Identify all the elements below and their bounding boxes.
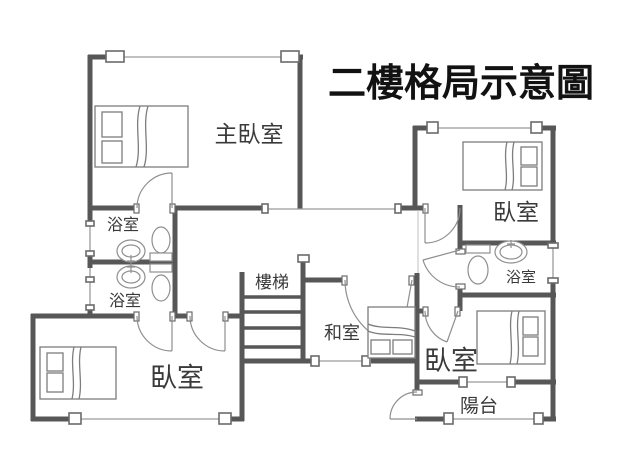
window-marker (459, 377, 467, 387)
door-swing-bedroom-bottom-left (190, 316, 225, 351)
door-swing-bedroom-top-right (425, 208, 460, 243)
window-marker (86, 251, 94, 256)
window-marker (444, 413, 453, 424)
window-marker (548, 278, 558, 283)
bed-icon-bottom-left (40, 347, 116, 399)
bed-icon-top-right (463, 142, 542, 190)
sink-icon-right-bathroom (495, 240, 527, 263)
window-marker (395, 204, 401, 213)
toilet-icon-lower-bathroom (150, 264, 172, 301)
room-label-bedroom-bottom-right: 臥室 (424, 346, 478, 377)
window-marker (262, 204, 268, 213)
room-label-right-bathroom: 浴室 (506, 268, 536, 286)
window-marker (427, 122, 438, 133)
room-label-balcony: 陽台 (460, 395, 498, 417)
window-marker (106, 51, 124, 62)
floorplan-svg: 二樓格局示意圖 主臥室 浴室 浴室 樓梯 和室 臥室 浴室 臥室 臥室 陽台 (0, 0, 640, 461)
room-label-upper-bathroom: 浴室 (107, 215, 139, 234)
toilet-icon-upper-bathroom (150, 227, 172, 261)
door-swing-bedroom-bottom-right (425, 311, 458, 342)
window-marker (86, 221, 94, 226)
window-marker (86, 277, 94, 282)
toilet-icon-right-bathroom (466, 245, 490, 284)
floorplan-page: 二樓格局示意圖 主臥室 浴室 浴室 樓梯 和室 臥室 浴室 臥室 臥室 陽台 (0, 0, 640, 461)
wall-end-cap (298, 255, 309, 262)
window-marker (86, 305, 94, 310)
window-marker (219, 413, 231, 424)
bed-icon-tatami-room (368, 307, 415, 358)
room-label-stairs: 樓梯 (255, 273, 289, 293)
room-label-bedroom-top-right: 臥室 (493, 200, 539, 226)
sink-icon-lower-bathroom (117, 264, 145, 288)
window-marker (531, 122, 542, 133)
door-swing-balcony (390, 392, 417, 419)
bed-icon-bottom-right (477, 311, 545, 364)
door-swing-lower-bathroom (137, 316, 172, 351)
room-label-lower-bathroom: 浴室 (109, 291, 141, 310)
window-marker (311, 356, 319, 366)
door-swing-master-bathroom (137, 173, 172, 208)
window-marker (534, 413, 543, 424)
page-title: 二樓格局示意圖 (328, 61, 594, 105)
room-label-master-bedroom: 主臥室 (215, 122, 284, 148)
door-swing-bathroom-right (423, 250, 460, 287)
window-marker (281, 51, 299, 62)
window-marker (69, 413, 81, 424)
window-marker (507, 377, 515, 387)
room-label-tatami-room: 和室 (324, 323, 360, 344)
stairs-steps (244, 297, 301, 347)
room-label-bedroom-bottom-left: 臥室 (150, 363, 204, 394)
bed-icon-master (95, 106, 188, 167)
window-marker (548, 243, 558, 248)
